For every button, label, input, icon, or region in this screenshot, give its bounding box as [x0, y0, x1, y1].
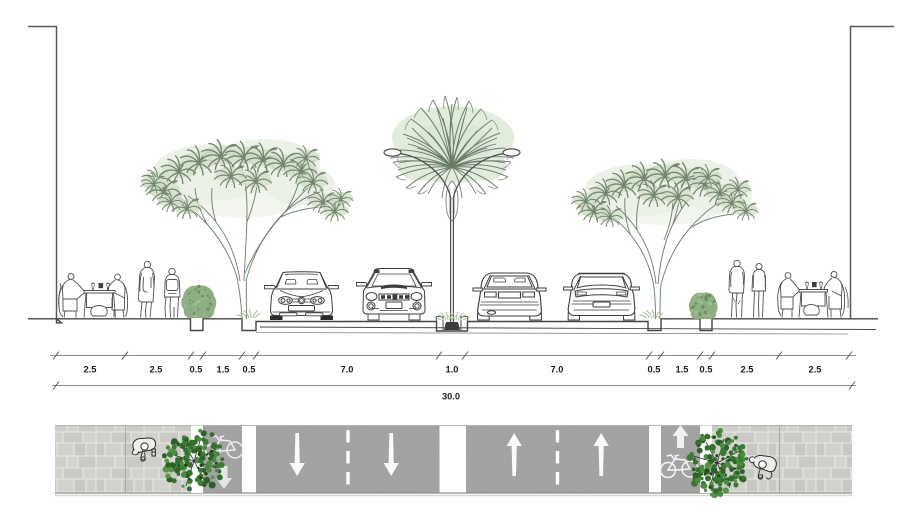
svg-text:2.5: 2.5	[84, 365, 97, 375]
svg-text:0.5: 0.5	[700, 365, 713, 375]
svg-text:7.0: 7.0	[341, 365, 354, 375]
svg-text:30.0: 30.0	[442, 392, 460, 402]
svg-text:7.0: 7.0	[551, 365, 564, 375]
svg-text:0.5: 0.5	[243, 365, 256, 375]
svg-text:0.5: 0.5	[648, 365, 661, 375]
svg-text:2.5: 2.5	[809, 365, 822, 375]
svg-text:2.5: 2.5	[150, 365, 163, 375]
svg-text:2.5: 2.5	[741, 365, 754, 375]
svg-text:0.5: 0.5	[190, 365, 203, 375]
svg-text:1.5: 1.5	[676, 365, 689, 375]
svg-text:1.5: 1.5	[217, 365, 230, 375]
svg-text:1.0: 1.0	[446, 365, 459, 375]
